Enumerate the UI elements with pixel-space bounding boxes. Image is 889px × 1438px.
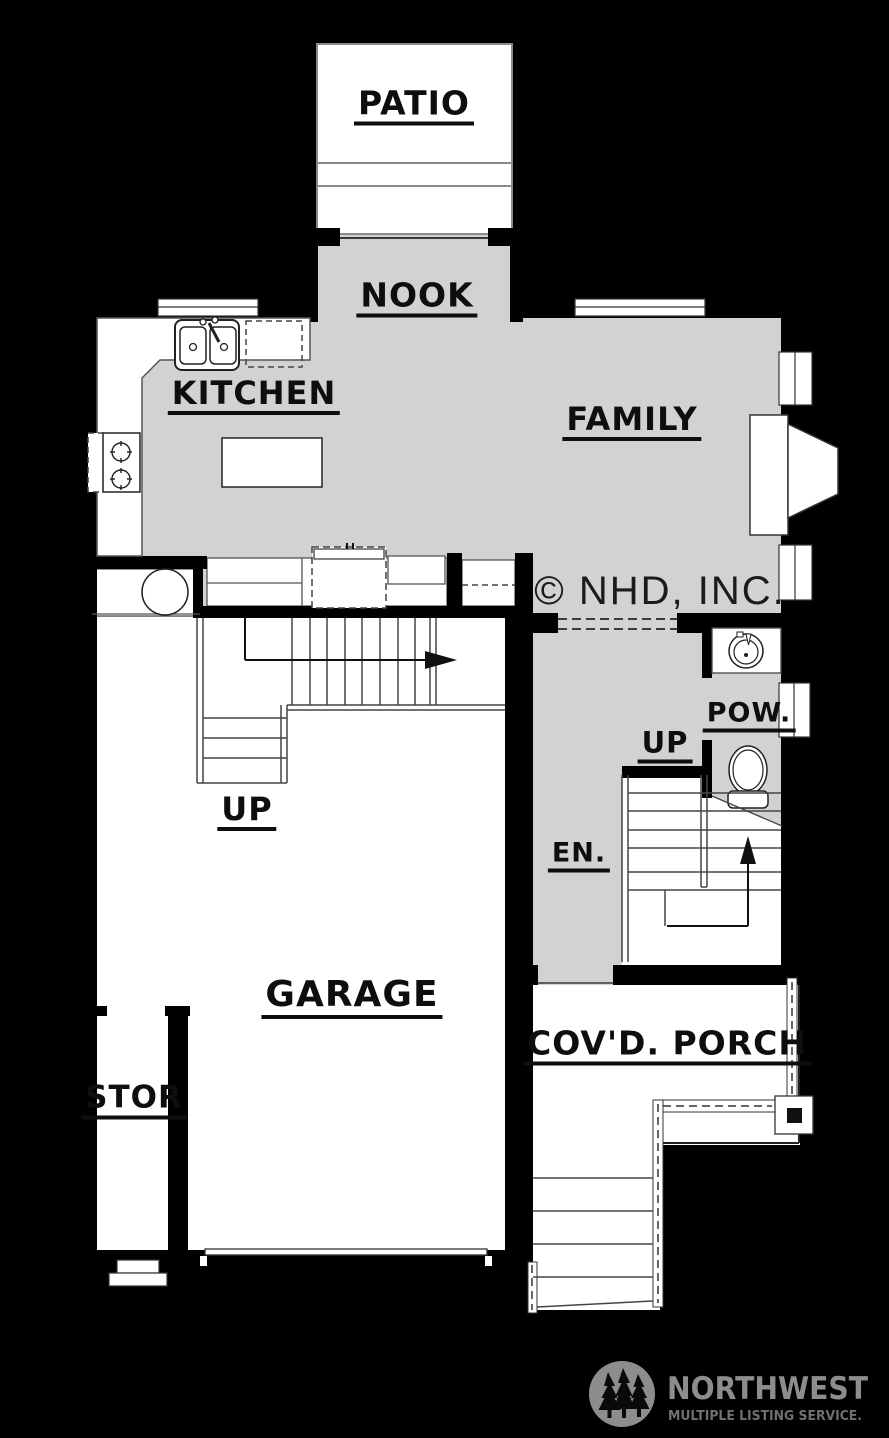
garage-area: [92, 617, 505, 1250]
porch-area: [533, 985, 800, 1145]
refrigerator-icon: [312, 543, 386, 608]
counter-segment: [388, 556, 445, 584]
storage-step-icon: [109, 1260, 167, 1286]
porch-steps-area: [533, 1145, 660, 1310]
porch-post-icon: [775, 1096, 813, 1134]
family-side-window-icon: [779, 352, 812, 405]
logo-subtitle: MULTIPLE LISTING SERVICE.: [668, 1409, 862, 1424]
range-icon: [88, 433, 140, 492]
powder-window-icon: [779, 683, 810, 737]
family-window-icon: [575, 299, 705, 316]
logo-title: NORTHWEST: [667, 1371, 868, 1407]
floor-plan-page: NORTHWEST MULTIPLE LISTING SERVICE. PATI…: [0, 0, 889, 1438]
family-side-window2-icon: [779, 545, 812, 600]
pantry: [462, 560, 515, 606]
island-icon: [222, 438, 322, 487]
patio-area: [317, 44, 512, 234]
kitchen-sink-icon: [175, 317, 239, 370]
nwmls-logo: NORTHWEST MULTIPLE LISTING SERVICE.: [589, 1361, 868, 1427]
toilet-icon: [728, 746, 768, 808]
kitchen-window-icon: [158, 299, 258, 316]
floor-plan-drawing: NORTHWEST MULTIPLE LISTING SERVICE.: [0, 0, 889, 1438]
